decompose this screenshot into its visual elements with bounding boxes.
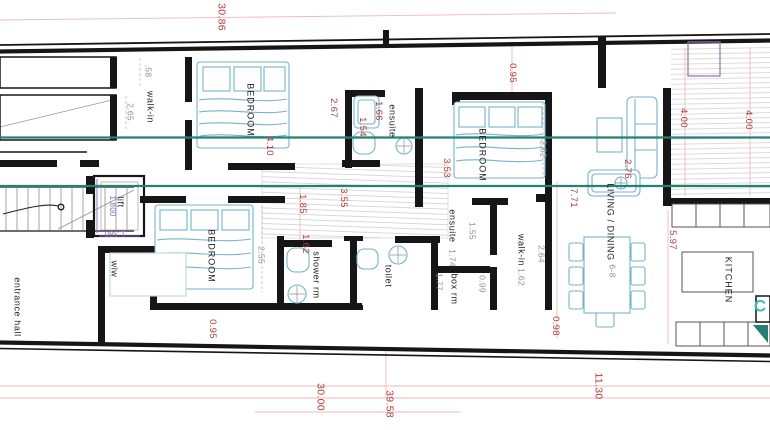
room-label-entrance-hall: entrance hall	[13, 277, 22, 336]
room-label-wiw: wiw	[110, 261, 119, 278]
dim-2-76: 2.76	[622, 159, 632, 179]
dim-seats-6-8: 6-8	[608, 264, 617, 277]
dim-11-30: 11.30	[593, 373, 604, 400]
dim-0-58: .58	[144, 65, 153, 78]
dim-lift-1-380: 1.380	[104, 229, 125, 237]
dim-2-65: 2.65	[126, 103, 135, 121]
dim-1-77: 1.77	[435, 273, 444, 291]
dim-7-71: 7.71	[568, 188, 578, 208]
dim-3-55: 3.55	[338, 188, 348, 208]
dim-2-64: 2.64	[537, 245, 546, 263]
kitchen-letter-c: C	[754, 298, 766, 315]
room-label-toilet: toilet	[384, 265, 393, 288]
room-label-bedroom-1: BEDROOM	[246, 83, 255, 137]
dim-39-58: 39.58	[384, 390, 395, 418]
dim-4-00-b: 4.00	[743, 110, 753, 130]
dim-30-00: 30.00	[315, 383, 326, 411]
label-layer: walk-inBEDROOMensuiteBEDROOMBEDROOMshowe…	[0, 0, 770, 430]
dim-30-86: 30.86	[216, 3, 227, 31]
dim-1-54: 1.54	[357, 117, 367, 137]
dim-0-95-top: 0.95	[507, 63, 517, 83]
room-label-walk-in-1: walk-in	[146, 91, 155, 123]
room-label-bedroom-2: BEDROOM	[478, 128, 487, 182]
room-label-box-rm: box rm	[450, 273, 459, 304]
dim-5-97: 5.97	[667, 230, 677, 250]
dim-lift-1-800: 1.800	[108, 195, 116, 216]
room-label-bedroom-3: BEDROOM	[207, 229, 216, 283]
dim-1-55: 1.55	[468, 222, 477, 240]
dim-1-66: 1.66	[373, 101, 383, 121]
dim-2-67: 2.67	[328, 98, 338, 118]
room-label-shower-rm: shower rm	[312, 251, 321, 298]
dim-0-98: 0.98	[550, 316, 560, 336]
room-label-ensuite-2: ensuite	[448, 209, 457, 242]
room-label-ensuite-1: ensuite	[388, 104, 397, 137]
dim-2-62: 2.62	[539, 140, 548, 158]
dim-1-85: 1.85	[297, 194, 307, 214]
dim-1-62-walkin: 1.62	[517, 268, 526, 286]
dim-3-53: 3.53	[441, 158, 451, 178]
room-label-kitchen: KITCHEN	[724, 257, 733, 304]
dim-1-74-ensuite: 1.74	[448, 249, 457, 267]
room-label-walk-in-2: walk-in	[517, 234, 526, 266]
dim-2-55: 2.55	[257, 246, 266, 264]
dim-1-62-red: 1.62	[300, 234, 310, 254]
dim-4-10: 4.10	[264, 136, 274, 156]
dim-0-99: 0.99	[478, 275, 487, 293]
room-label-living-dining: LIVING / DINING	[606, 183, 615, 261]
floor-plan: walk-inBEDROOMensuiteBEDROOMBEDROOMshowe…	[0, 0, 770, 430]
dim-0-95-bottom: 0.95	[207, 319, 217, 339]
dim-4-00-a: 4.00	[678, 108, 688, 128]
